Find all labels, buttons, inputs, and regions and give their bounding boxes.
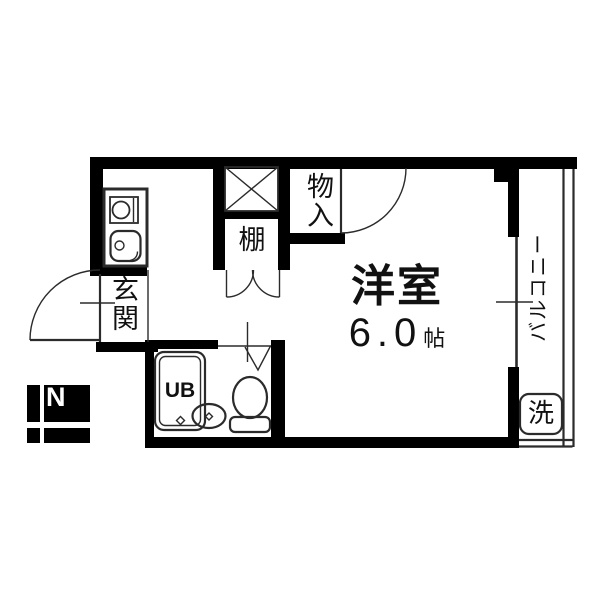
- entry-door-swing-arc: [30, 270, 100, 340]
- floor-drain-icon: [177, 417, 185, 425]
- storage-bottom-wall: [278, 233, 345, 244]
- shelf-door-right-arc: [253, 270, 280, 297]
- closet-divider-wall: [225, 211, 278, 219]
- storage-room-label: 物入: [300, 172, 332, 230]
- compass-bar-bottom: [44, 428, 90, 443]
- bath-right-wall: [271, 340, 285, 448]
- shelf-door-left-arc: [227, 270, 254, 297]
- floor-plan-canvas: [0, 0, 600, 600]
- compass-north-label: N: [46, 383, 66, 411]
- right-wall-lower: [508, 367, 519, 448]
- right-wall-upper: [508, 157, 519, 237]
- room-size-value: 6.0: [349, 312, 423, 354]
- bath-top-wall: [145, 340, 218, 349]
- sink-drain-icon: [115, 241, 124, 250]
- compass-bar-left: [27, 385, 40, 422]
- bath-door-chevron: [245, 346, 271, 370]
- main-room-label: 洋室: [327, 264, 467, 310]
- left-wall: [90, 157, 103, 276]
- unit-bath-label: UB: [157, 380, 203, 402]
- shelf-label: 棚: [234, 226, 270, 254]
- basin-drain-icon: [206, 413, 213, 420]
- closet-left-wall: [213, 157, 225, 270]
- balcony-label: バルコニー: [529, 227, 553, 347]
- floor-plan: 物入 棚 玄関 洋室 6.0 帖 バルコニー 洗 UB N: [0, 0, 600, 600]
- toilet-bowl: [233, 377, 267, 418]
- closet-right-wall: [278, 157, 290, 270]
- laundry-label: 洗: [520, 400, 562, 427]
- washbasin: [193, 404, 226, 428]
- room-door-swing-arc: [341, 168, 406, 233]
- bottom-wall: [145, 437, 519, 448]
- compass-bar-bottom-left: [27, 428, 40, 443]
- stove-burner-icon: [113, 202, 130, 219]
- toilet-tank: [230, 417, 270, 432]
- bathroom: [155, 322, 271, 432]
- kitchen-counter: [104, 189, 147, 266]
- room-door: [341, 168, 406, 233]
- main-room-size: 6.0 帖: [327, 312, 467, 354]
- room-size-unit: 帖: [423, 327, 445, 350]
- bath-left-wall: [145, 340, 154, 448]
- entrance-label: 玄関: [105, 275, 137, 333]
